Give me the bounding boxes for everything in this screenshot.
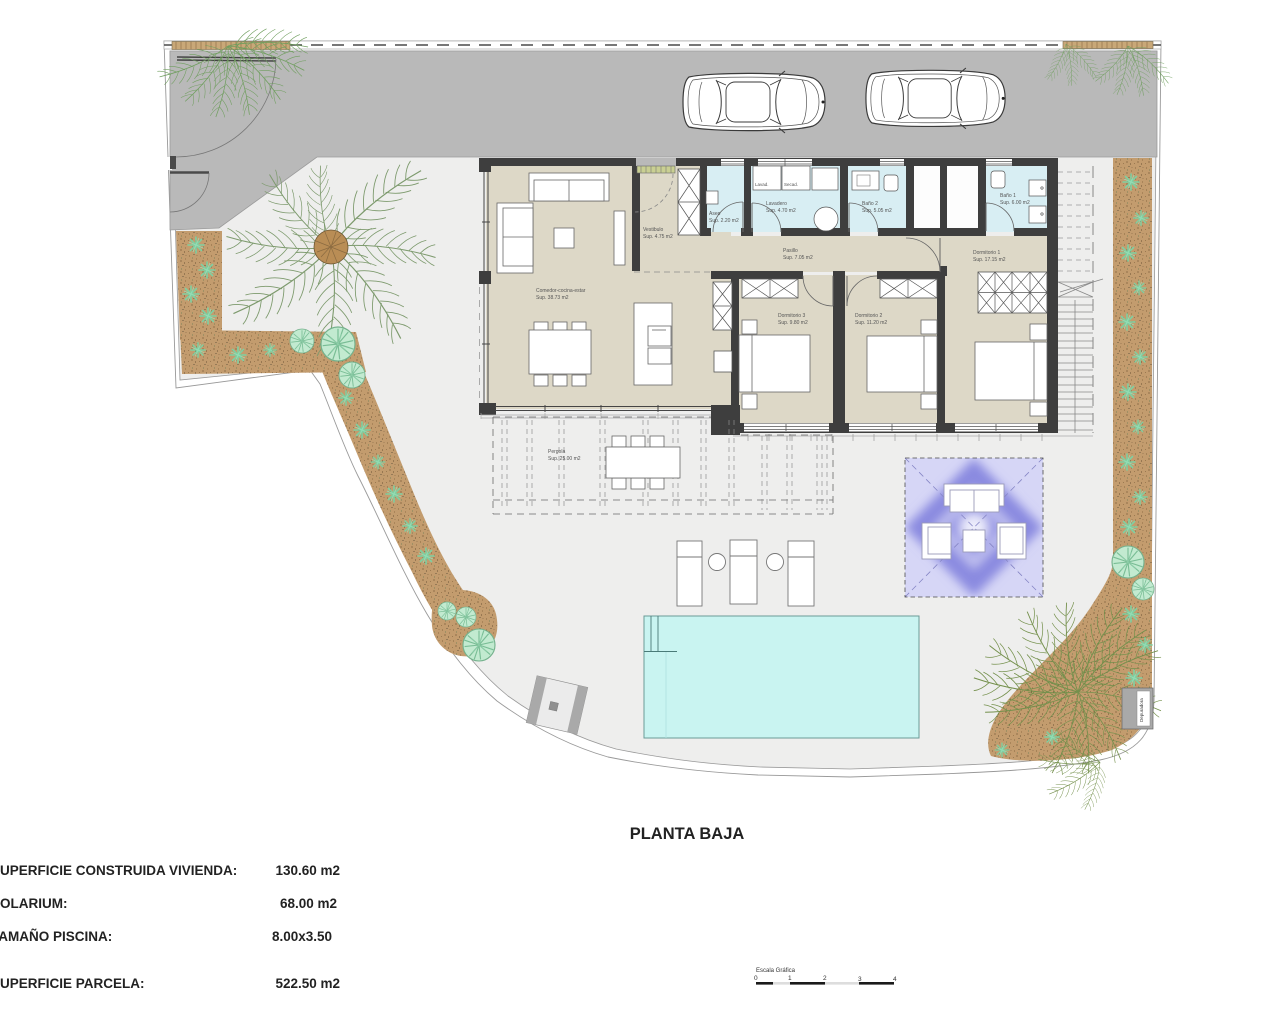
svg-text:SUPERFICIE CONSTRUIDA VIVIENDA: SUPERFICIE CONSTRUIDA VIVIENDA: <box>0 863 237 878</box>
svg-text:4: 4 <box>893 976 897 983</box>
svg-text:Depuradora: Depuradora <box>1139 698 1144 722</box>
svg-text:Sup. 5.05 m2: Sup. 5.05 m2 <box>862 208 892 214</box>
svg-text:Sup. 4.75 m2: Sup. 4.75 m2 <box>643 234 673 240</box>
svg-text:Sup. 4.70 m2: Sup. 4.70 m2 <box>766 208 796 214</box>
svg-text:0: 0 <box>754 975 758 982</box>
svg-text:Aseo: Aseo <box>709 211 721 217</box>
svg-text:Sup. 38.73 m2: Sup. 38.73 m2 <box>536 295 569 301</box>
svg-text:1: 1 <box>788 975 792 982</box>
svg-text:Sup. 25.00 m2: Sup. 25.00 m2 <box>548 456 581 462</box>
svg-text:Pasillo: Pasillo <box>783 248 798 254</box>
svg-text:PLANTA BAJA: PLANTA BAJA <box>630 825 745 843</box>
svg-text:Dormitorio 3: Dormitorio 3 <box>778 313 805 319</box>
svg-text:SOLARIUM:: SOLARIUM: <box>0 896 68 911</box>
svg-text:Secad.: Secad. <box>784 182 798 187</box>
svg-text:Escala Gráfica: Escala Gráfica <box>756 968 796 974</box>
svg-text:Lavad.: Lavad. <box>755 182 769 187</box>
svg-text:TAMAÑO PISCINA:: TAMAÑO PISCINA: <box>0 929 112 944</box>
svg-text:8.00x3.50: 8.00x3.50 <box>272 929 332 944</box>
svg-text:Sup. 6.00 m2: Sup. 6.00 m2 <box>1000 200 1030 206</box>
svg-text:Vestibulo: Vestibulo <box>643 227 664 233</box>
svg-text:Sup. 17.15 m2: Sup. 17.15 m2 <box>973 257 1006 263</box>
svg-text:Baño 2: Baño 2 <box>862 201 878 207</box>
svg-text:68.00 m2: 68.00 m2 <box>280 896 337 911</box>
svg-text:SUPERFICIE PARCELA:: SUPERFICIE PARCELA: <box>0 976 145 991</box>
svg-text:2: 2 <box>823 975 827 982</box>
svg-text:Pergola: Pergola <box>548 449 565 455</box>
svg-text:130.60 m2: 130.60 m2 <box>275 863 340 878</box>
svg-text:Sup. 2.20 m2: Sup. 2.20 m2 <box>709 218 739 224</box>
svg-text:Lavadero: Lavadero <box>766 201 787 207</box>
svg-text:Sup. 11.20 m2: Sup. 11.20 m2 <box>855 320 887 326</box>
svg-text:Comedor-cocina-estar: Comedor-cocina-estar <box>536 288 586 294</box>
svg-text:3: 3 <box>858 976 862 983</box>
svg-text:522.50 m2: 522.50 m2 <box>275 976 340 991</box>
svg-text:Sup. 7.05 m2: Sup. 7.05 m2 <box>783 255 813 261</box>
svg-text:Baño 1: Baño 1 <box>1000 193 1016 199</box>
svg-text:Dormitorio 1: Dormitorio 1 <box>973 250 1000 256</box>
svg-text:Sup. 9.80 m2: Sup. 9.80 m2 <box>778 320 808 326</box>
svg-text:Dormitorio 2: Dormitorio 2 <box>855 313 882 319</box>
